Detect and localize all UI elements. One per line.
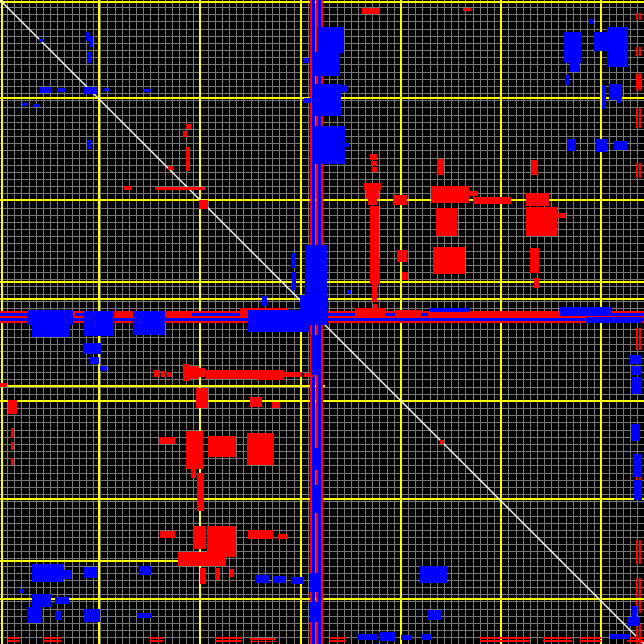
forward-matches-mark	[437, 159, 444, 175]
reverse-matches-mark	[570, 63, 579, 72]
forward-matches-mark	[395, 310, 421, 317]
reverse-matches-mark	[614, 141, 627, 150]
reverse-matches-mark	[633, 454, 642, 477]
reverse-matches-mark	[139, 566, 151, 575]
forward-matches-mark	[43, 640, 61, 642]
forward-matches-mark	[636, 108, 638, 128]
forward-matches-mark	[278, 534, 288, 539]
reverse-matches-mark	[589, 19, 593, 24]
reverse-matches-mark	[87, 140, 91, 149]
forward-matches-mark	[11, 458, 14, 465]
reverse-matches-mark	[317, 27, 344, 53]
reverse-matches-mark	[32, 594, 51, 607]
reverse-matches-mark	[63, 570, 72, 579]
reverse-matches-mark	[379, 632, 395, 641]
forward-matches-mark	[183, 364, 190, 381]
reverse-matches-mark	[292, 272, 296, 290]
forward-matches-mark	[636, 540, 638, 564]
forward-matches-mark	[159, 437, 175, 444]
forward-matches-mark	[206, 370, 258, 379]
forward-matches-mark	[373, 304, 377, 314]
reverse-matches-mark	[631, 424, 640, 441]
reverse-matches-mark	[84, 311, 114, 336]
match-marks-layer	[0, 0, 644, 644]
forward-matches-mark	[193, 526, 206, 549]
reverse-matches-mark	[255, 575, 269, 583]
reverse-matches-mark	[55, 611, 62, 620]
forward-matches-mark	[440, 440, 444, 444]
reverse-matches-mark	[133, 311, 165, 335]
forward-matches-mark	[190, 366, 199, 379]
forward-matches-mark	[372, 167, 377, 172]
reverse-matches-mark	[100, 366, 107, 371]
reverse-matches-mark	[345, 143, 349, 147]
forward-matches-mark	[639, 578, 641, 598]
reverse-matches-mark	[84, 567, 98, 578]
forward-matches-mark	[636, 13, 638, 20]
reverse-matches-mark	[310, 602, 319, 622]
forward-matches-mark	[8, 400, 17, 414]
reverse-matches-mark	[401, 635, 412, 640]
reverse-matches-mark	[90, 357, 99, 364]
forward-matches-mark	[639, 47, 641, 56]
reverse-matches-mark	[610, 634, 630, 639]
reverse-matches-mark	[57, 88, 66, 92]
reverse-matches-mark	[304, 98, 311, 103]
reverse-matches-mark	[630, 355, 641, 364]
forward-matches-mark	[196, 388, 208, 408]
dotplot-canvas	[0, 0, 644, 644]
reverse-matches-mark	[565, 75, 569, 85]
forward-matches-mark	[433, 247, 465, 274]
forward-matches-mark	[370, 206, 379, 258]
forward-matches-mark	[543, 637, 572, 639]
reverse-matches-mark	[33, 104, 40, 107]
reverse-matches-mark	[632, 377, 642, 394]
forward-matches-mark	[154, 370, 160, 377]
forward-matches-mark	[11, 428, 14, 438]
reverse-matches-mark	[27, 607, 42, 623]
reverse-matches-mark	[137, 613, 152, 618]
forward-matches-mark	[272, 402, 280, 408]
forward-matches-mark	[580, 637, 601, 639]
forward-matches-mark	[168, 166, 173, 170]
reverse-matches-mark	[602, 85, 606, 109]
forward-matches-mark	[480, 640, 530, 642]
forward-matches-mark	[191, 469, 196, 478]
forward-matches-mark	[557, 213, 566, 218]
forward-matches-mark	[215, 554, 220, 561]
reverse-matches-mark	[310, 573, 319, 592]
reverse-matches-mark	[32, 564, 63, 582]
forward-matches-mark	[183, 131, 187, 137]
forward-matches-mark	[186, 124, 191, 129]
reverse-matches-mark	[22, 103, 28, 106]
reverse-matches-mark	[347, 290, 351, 294]
forward-matches-mark	[543, 640, 572, 642]
forward-matches-mark	[284, 372, 302, 377]
forward-matches-mark	[155, 187, 205, 190]
reverse-matches-mark	[84, 87, 98, 94]
forward-matches-mark	[534, 278, 539, 288]
forward-matches-mark	[247, 433, 274, 465]
reverse-matches-mark	[567, 139, 576, 151]
forward-matches-mark	[250, 638, 276, 640]
forward-matches-mark	[208, 436, 236, 457]
reverse-matches-mark	[84, 609, 100, 622]
forward-matches-mark	[330, 637, 346, 639]
forward-matches-mark	[639, 108, 641, 128]
forward-matches-mark	[200, 568, 206, 584]
forward-matches-mark	[530, 248, 539, 273]
forward-matches-mark	[215, 568, 220, 580]
forward-matches-mark	[370, 258, 380, 284]
forward-matches-mark	[186, 431, 203, 469]
reverse-matches-mark	[87, 52, 91, 63]
forward-matches-mark	[11, 442, 14, 450]
reverse-matches-mark	[27, 310, 73, 325]
reverse-matches-mark	[634, 480, 642, 500]
forward-matches-mark	[150, 637, 163, 639]
reverse-matches-mark	[143, 89, 151, 92]
reverse-matches-mark	[262, 296, 267, 306]
forward-matches-mark	[0, 383, 7, 387]
forward-matches-mark	[364, 183, 381, 190]
reverse-matches-mark	[428, 610, 441, 620]
forward-matches-mark	[124, 186, 132, 190]
forward-matches-mark	[8, 640, 20, 642]
forward-matches-mark	[639, 600, 641, 613]
forward-matches-mark	[636, 163, 638, 178]
reverse-matches-mark	[596, 139, 607, 152]
forward-matches-mark	[636, 328, 638, 350]
reverse-matches-mark	[422, 634, 431, 640]
reverse-matches-mark	[311, 335, 320, 375]
reverse-matches-mark	[430, 308, 470, 312]
forward-matches-mark	[636, 47, 638, 56]
forward-matches-mark	[372, 284, 377, 302]
forward-matches-mark	[199, 368, 205, 377]
reverse-matches-mark	[357, 634, 378, 640]
reverse-matches-mark	[336, 85, 348, 92]
forward-matches-mark	[330, 640, 346, 642]
reverse-matches-mark	[632, 606, 637, 620]
forward-matches-mark	[215, 640, 242, 642]
reverse-matches-mark	[617, 87, 621, 103]
reverse-matches-mark	[291, 577, 303, 584]
forward-matches-mark	[43, 637, 61, 639]
forward-matches-mark	[161, 371, 166, 377]
forward-matches-mark	[580, 640, 601, 642]
forward-matches-mark	[480, 637, 530, 639]
forward-matches-mark	[639, 163, 641, 178]
forward-matches-mark	[639, 13, 641, 20]
reverse-matches-mark	[611, 55, 620, 62]
reverse-matches-mark	[564, 32, 582, 63]
reverse-matches-mark	[273, 576, 286, 583]
reverse-matches-mark	[248, 310, 310, 332]
forward-matches-mark	[402, 272, 408, 280]
forward-matches-mark	[167, 372, 172, 377]
forward-matches-mark	[526, 193, 549, 206]
reverse-matches-mark	[19, 589, 24, 593]
forward-matches-mark	[186, 147, 190, 171]
forward-matches-mark	[431, 186, 469, 203]
reverse-matches-mark	[55, 597, 69, 604]
forward-matches-mark	[526, 207, 557, 236]
forward-matches-mark	[627, 640, 644, 642]
reverse-matches-mark	[104, 88, 110, 91]
reverse-matches-mark	[594, 32, 607, 51]
reverse-matches-mark	[312, 485, 321, 513]
forward-matches-mark	[8, 637, 20, 639]
forward-matches-mark	[160, 531, 175, 538]
forward-matches-mark	[150, 640, 163, 642]
forward-matches-mark	[197, 473, 204, 511]
reverse-matches-mark	[313, 126, 345, 164]
forward-matches-mark	[463, 8, 471, 11]
reverse-matches-mark	[39, 39, 44, 42]
forward-matches-mark	[248, 530, 273, 539]
forward-matches-mark	[636, 578, 638, 598]
forward-matches-mark	[258, 370, 284, 380]
forward-matches-mark	[393, 195, 407, 205]
forward-matches-mark	[370, 154, 377, 160]
reverse-matches-mark	[631, 366, 641, 375]
forward-matches-mark	[199, 200, 208, 209]
forward-matches-mark	[230, 569, 234, 577]
forward-matches-mark	[531, 160, 538, 175]
reverse-matches-mark	[32, 324, 70, 337]
reverse-matches-mark	[586, 317, 642, 323]
forward-matches-mark	[639, 328, 641, 350]
reverse-matches-mark	[83, 343, 101, 354]
forward-matches-mark	[355, 308, 385, 316]
reverse-matches-mark	[89, 36, 93, 47]
forward-matches-mark	[215, 637, 242, 639]
forward-matches-mark	[250, 397, 262, 407]
forward-matches-mark	[436, 208, 457, 236]
forward-matches-mark	[473, 197, 511, 204]
forward-matches-mark	[397, 250, 407, 262]
forward-matches-mark	[371, 161, 377, 166]
forward-matches-mark	[362, 8, 380, 14]
reverse-matches-mark	[291, 253, 295, 268]
forward-matches-mark	[366, 190, 379, 199]
forward-matches-mark	[637, 75, 642, 89]
forward-matches-mark	[639, 540, 641, 564]
reverse-matches-mark	[560, 307, 612, 314]
reverse-matches-mark	[315, 52, 340, 76]
forward-matches-mark	[469, 191, 478, 196]
reverse-matches-mark	[312, 448, 321, 470]
reverse-matches-mark	[40, 87, 52, 93]
forward-matches-mark	[250, 641, 276, 642]
reverse-matches-mark	[303, 58, 309, 63]
reverse-matches-mark	[420, 566, 447, 583]
forward-matches-mark	[368, 199, 377, 205]
